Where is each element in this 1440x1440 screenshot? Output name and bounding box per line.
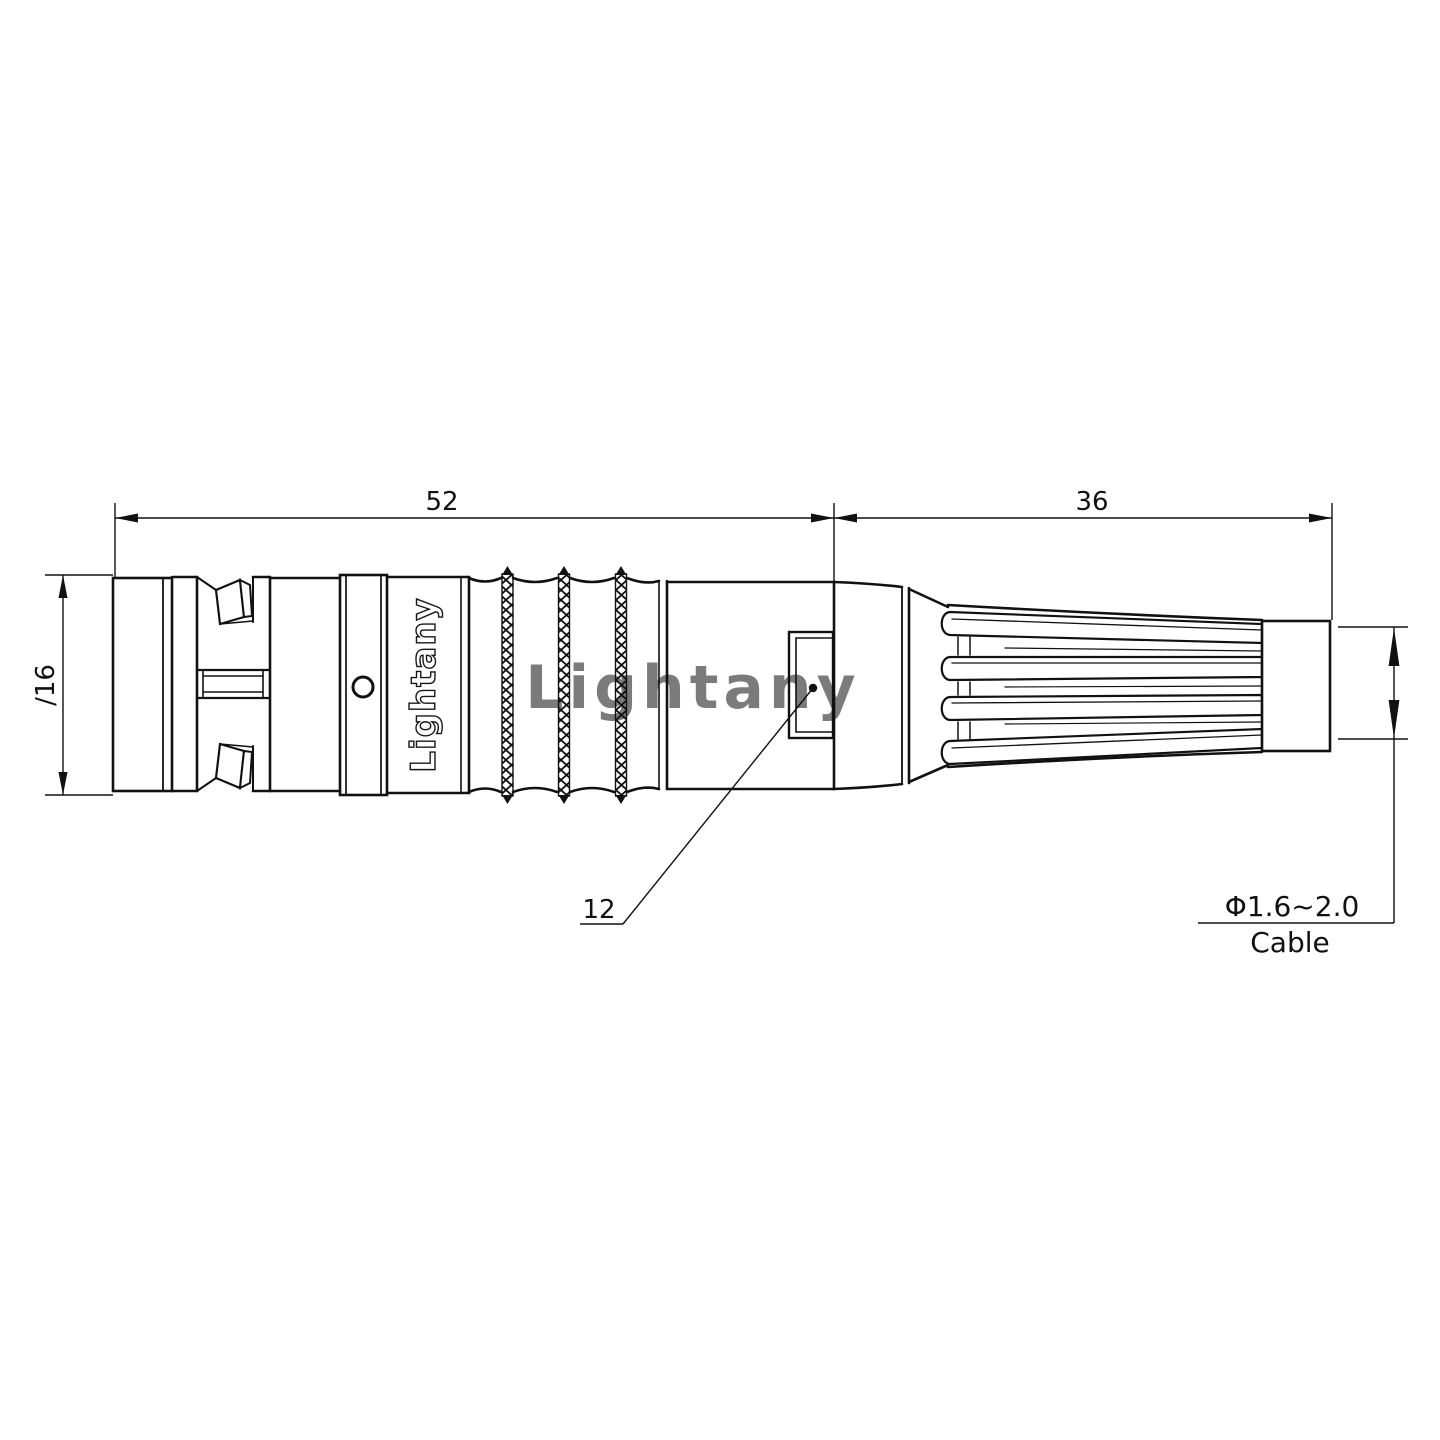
insert-ref-dimension-label: 12 bbox=[582, 895, 615, 925]
body-engraving: Lightany bbox=[404, 597, 444, 772]
brand-watermark: Lightany bbox=[525, 653, 860, 723]
boot-fin-webs bbox=[958, 637, 1262, 739]
cable-label: Cable bbox=[1250, 926, 1330, 959]
latch-section bbox=[172, 577, 270, 791]
coupling-ring bbox=[340, 575, 387, 795]
strain-relief-boot bbox=[834, 582, 1330, 789]
front-length-dimension-label: 52 bbox=[425, 487, 458, 517]
connector-drawing: Lightany Lightany 52 36 ∕16 12 Φ1.6~2.0 … bbox=[0, 0, 1440, 1440]
vent-hole bbox=[353, 677, 373, 697]
cable-range-label: Φ1.6~2.0 bbox=[1225, 890, 1360, 923]
body-diameter-dimension-label: ∕16 bbox=[31, 664, 61, 706]
cable-end-block bbox=[1262, 621, 1330, 751]
mid-section bbox=[270, 578, 340, 791]
boot-length-dimension-label: 36 bbox=[1075, 487, 1108, 517]
boot-fins bbox=[942, 612, 1262, 764]
technical-drawing-canvas: Lightany Lightany 52 36 ∕16 12 Φ1.6~2.0 … bbox=[0, 0, 1440, 1440]
